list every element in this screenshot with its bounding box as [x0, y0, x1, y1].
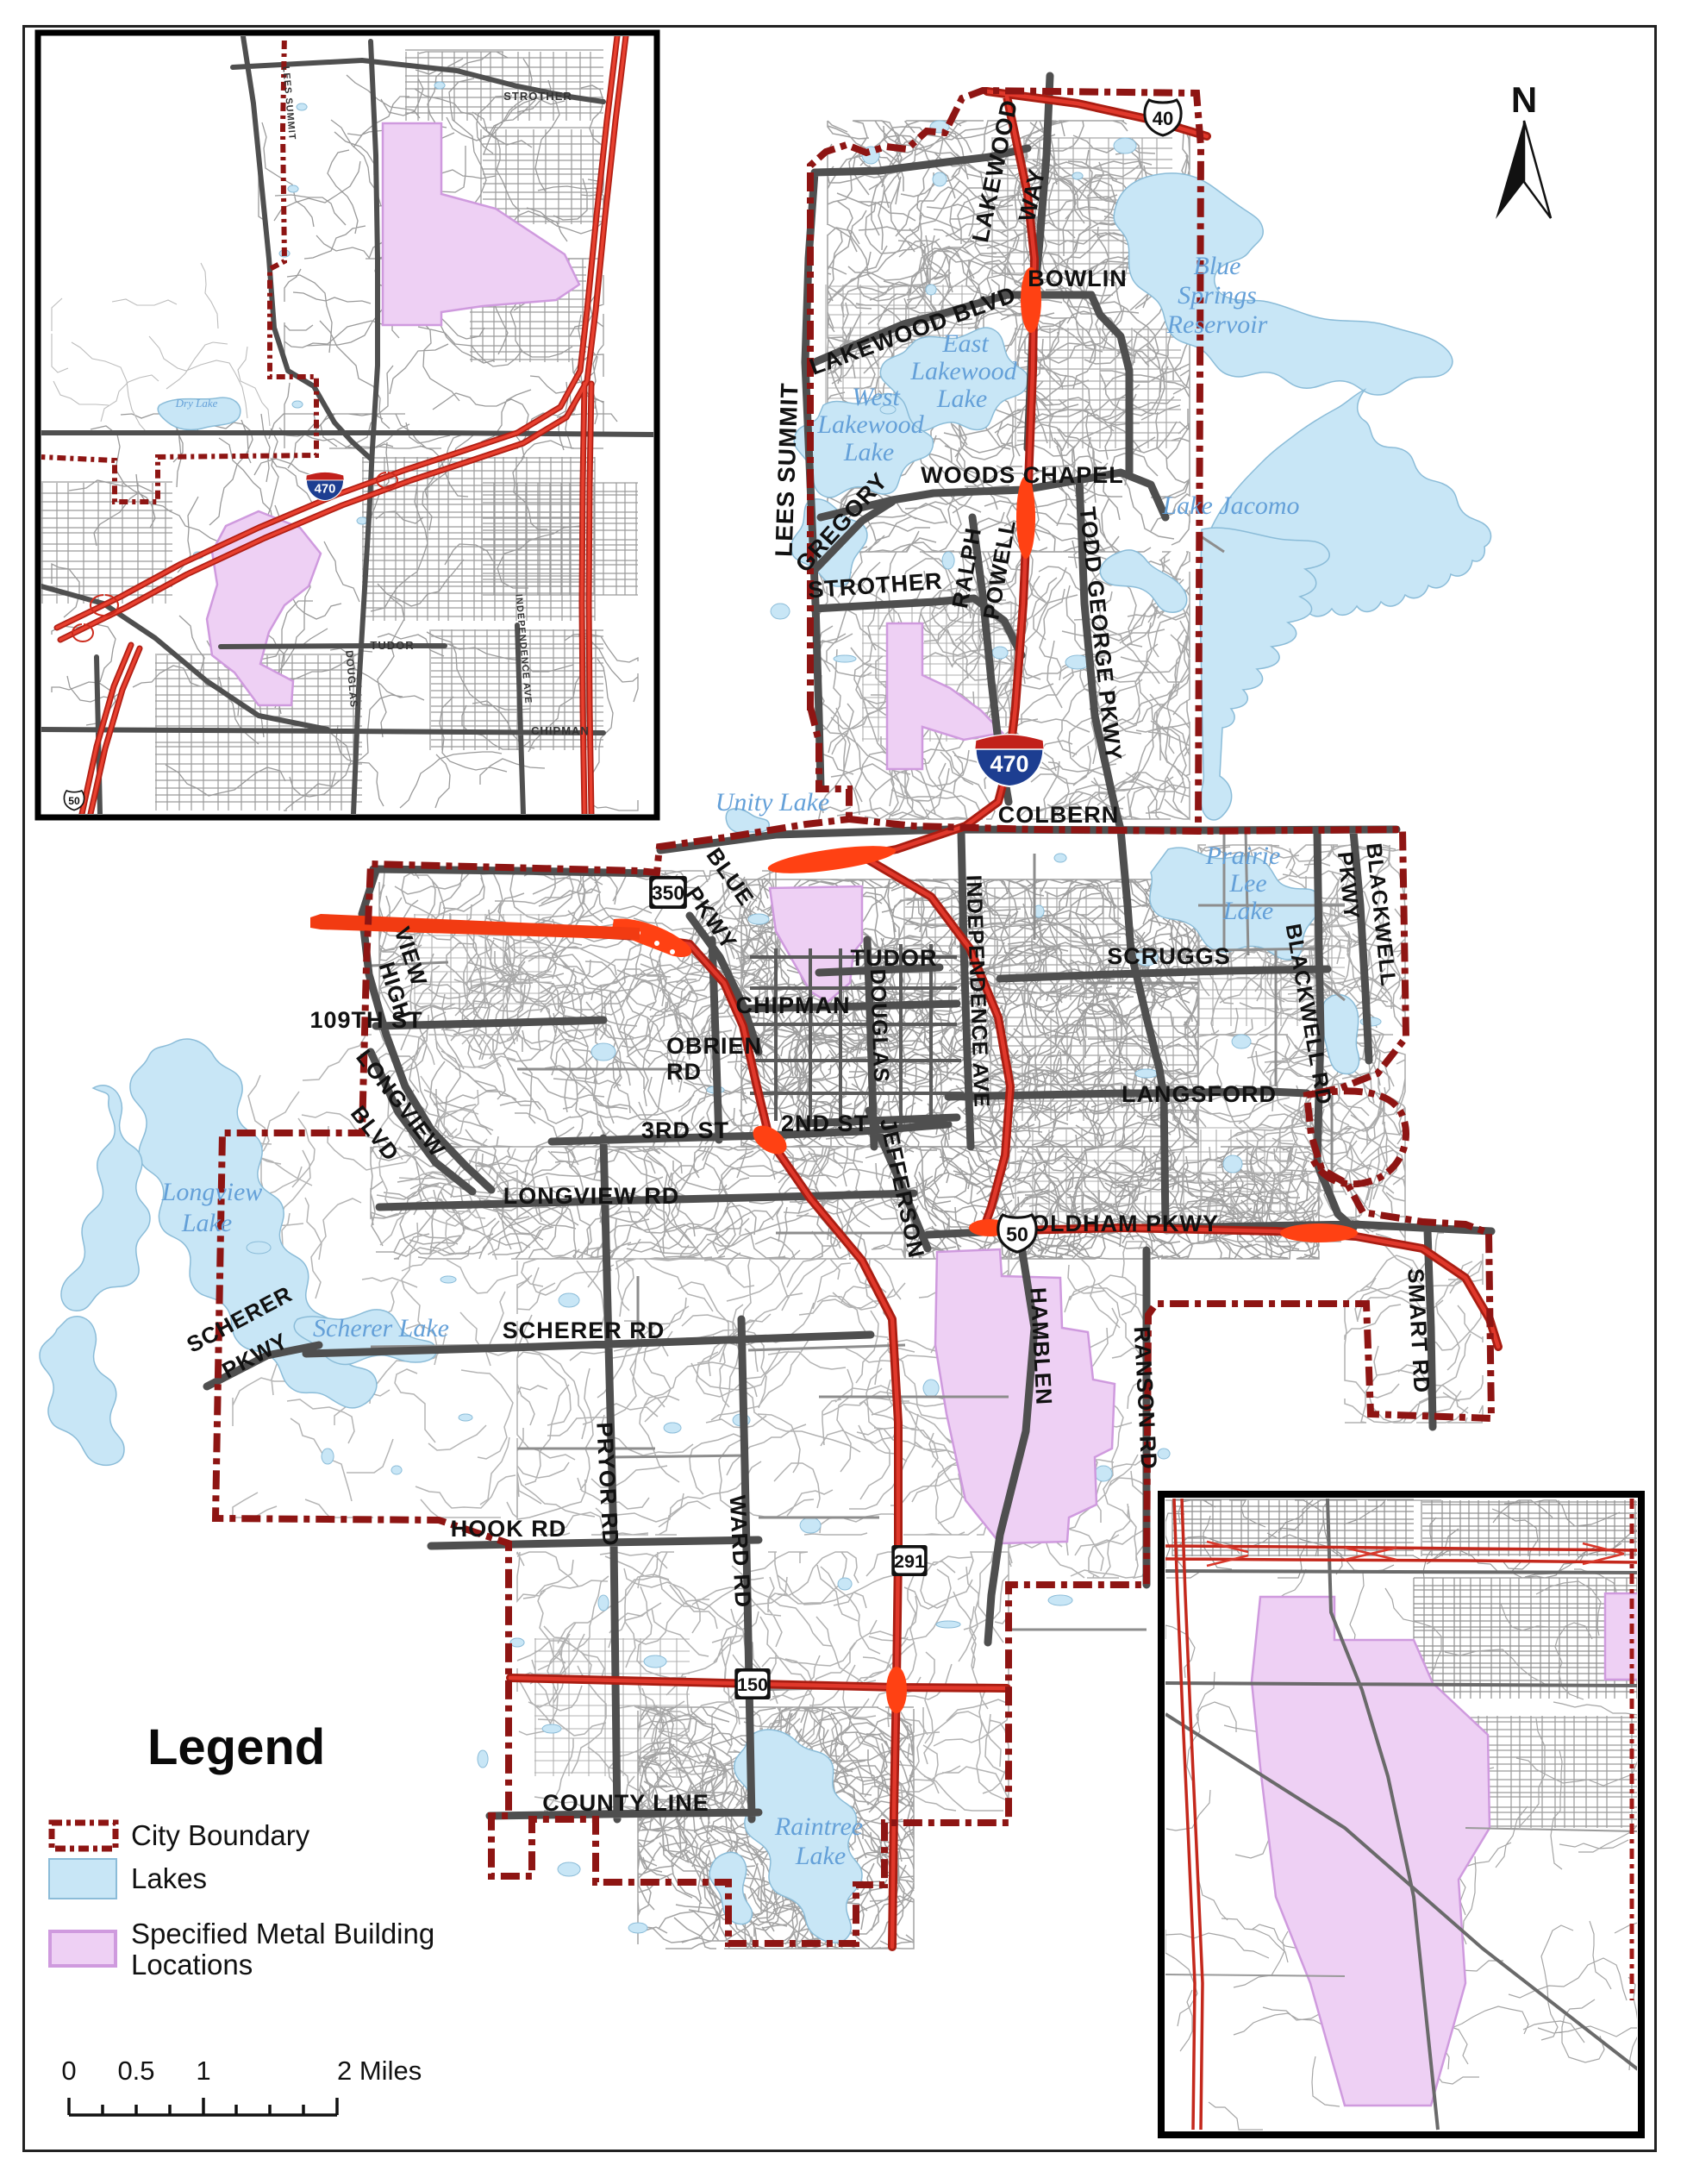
- svg-text:Lakes: Lakes: [131, 1862, 207, 1894]
- svg-text:50: 50: [1006, 1223, 1028, 1245]
- svg-text:East: East: [941, 329, 989, 358]
- svg-text:Lake: Lake: [181, 1209, 232, 1237]
- svg-text:350: 350: [652, 882, 684, 904]
- svg-text:470: 470: [990, 751, 1028, 777]
- svg-text:Lee: Lee: [1228, 869, 1266, 898]
- svg-text:Longview: Longview: [161, 1178, 263, 1206]
- svg-text:West: West: [852, 383, 900, 411]
- svg-text:Blue: Blue: [1194, 252, 1241, 280]
- svg-text:Lakewood: Lakewood: [909, 357, 1017, 385]
- svg-text:LANGSFORD: LANGSFORD: [1122, 1081, 1277, 1107]
- svg-text:2 Miles: 2 Miles: [337, 2056, 422, 2086]
- svg-text:Raintree: Raintree: [774, 1812, 863, 1841]
- svg-text:50: 50: [68, 795, 80, 807]
- svg-text:OBRIEN: OBRIEN: [666, 1033, 762, 1059]
- svg-text:0: 0: [61, 2056, 76, 2086]
- svg-text:N: N: [1511, 79, 1537, 120]
- svg-text:BOWLIN: BOWLIN: [1028, 266, 1127, 291]
- svg-text:2ND ST: 2ND ST: [781, 1111, 869, 1136]
- svg-text:City Boundary: City Boundary: [131, 1819, 310, 1851]
- svg-text:Legend: Legend: [147, 1719, 325, 1775]
- svg-text:470: 470: [315, 482, 336, 496]
- svg-text:COLBERN: COLBERN: [998, 802, 1120, 828]
- svg-text:40: 40: [1153, 108, 1173, 129]
- svg-text:CHIPMAN: CHIPMAN: [736, 992, 851, 1018]
- svg-text:SCRUGGS: SCRUGGS: [1107, 943, 1231, 969]
- svg-text:0.5: 0.5: [117, 2056, 154, 2086]
- svg-text:Reservoir: Reservoir: [1166, 310, 1268, 339]
- svg-text:COUNTY LINE: COUNTY LINE: [542, 1790, 709, 1816]
- svg-text:Lake: Lake: [936, 385, 987, 413]
- svg-text:CHIPMAN: CHIPMAN: [531, 724, 590, 737]
- svg-text:Scherer Lake: Scherer Lake: [313, 1314, 449, 1342]
- svg-text:Dry Lake: Dry Lake: [175, 397, 218, 410]
- svg-text:OLDHAM PKWY: OLDHAM PKWY: [1031, 1211, 1219, 1236]
- svg-text:SCHERER RD: SCHERER RD: [503, 1317, 665, 1343]
- svg-text:Lake: Lake: [1222, 897, 1273, 925]
- svg-text:HOOK RD: HOOK RD: [451, 1516, 567, 1542]
- svg-text:STROTHER: STROTHER: [503, 90, 572, 103]
- svg-text:WOODS CHAPEL: WOODS CHAPEL: [921, 462, 1124, 488]
- svg-text:Unity Lake: Unity Lake: [715, 788, 829, 817]
- svg-text:150: 150: [737, 1674, 768, 1695]
- svg-text:291: 291: [894, 1550, 925, 1572]
- svg-text:Prairie: Prairie: [1205, 842, 1281, 870]
- svg-text:TUDOR: TUDOR: [851, 945, 938, 971]
- svg-text:LONGVIEW RD: LONGVIEW RD: [503, 1183, 680, 1209]
- svg-text:Locations: Locations: [131, 1949, 253, 1981]
- svg-text:Lake Jacomo: Lake Jacomo: [1161, 491, 1299, 520]
- svg-text:Lake: Lake: [795, 1842, 846, 1870]
- svg-text:TUDOR: TUDOR: [370, 639, 414, 652]
- svg-text:Lake: Lake: [843, 438, 894, 466]
- svg-text:RD: RD: [666, 1059, 702, 1085]
- svg-text:Lakewood: Lakewood: [816, 410, 924, 439]
- svg-text:DOUGLAS: DOUGLAS: [865, 968, 894, 1083]
- svg-text:3RD ST: 3RD ST: [641, 1117, 729, 1143]
- svg-text:Specified Metal Building: Specified Metal Building: [131, 1918, 434, 1949]
- svg-text:Springs: Springs: [1178, 281, 1257, 310]
- svg-text:1: 1: [196, 2056, 210, 2086]
